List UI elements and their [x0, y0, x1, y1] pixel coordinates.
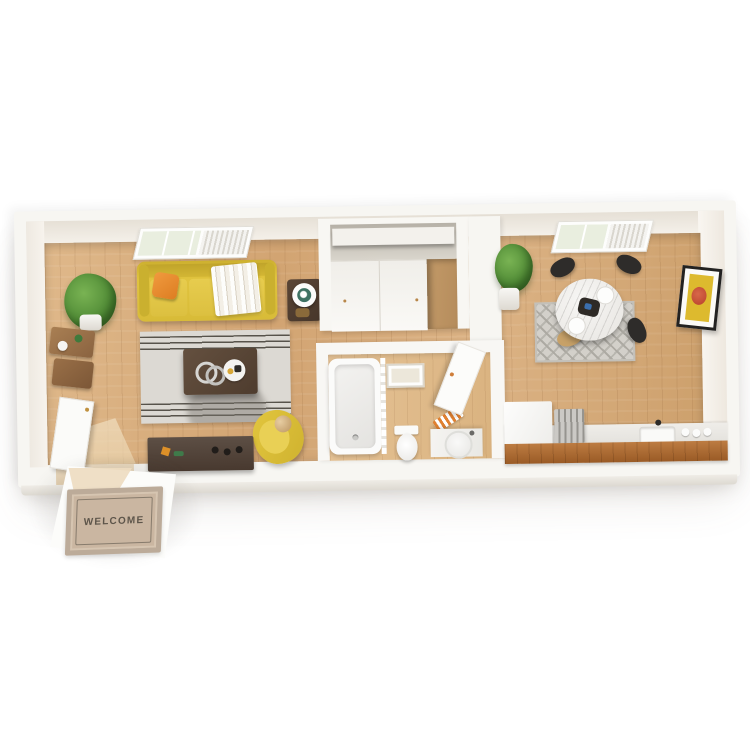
- range-icon: [554, 409, 585, 443]
- faucet-icon: [469, 430, 474, 435]
- counter-jars-icon: [681, 428, 711, 438]
- toilet: [396, 433, 417, 460]
- coffee-table: [183, 348, 258, 395]
- welcome-mat: WELCOME: [65, 486, 163, 555]
- apartment-floorplan: [14, 200, 740, 487]
- art-print: [685, 274, 714, 322]
- door-handle-icon: [449, 372, 454, 377]
- throw-blanket: [211, 262, 262, 316]
- sofa: [137, 260, 278, 322]
- shelf-tier: [51, 358, 94, 389]
- round-cushion: [272, 413, 294, 435]
- refrigerator: [504, 401, 553, 446]
- bathroom-vanity: [430, 428, 482, 457]
- bathroom: [316, 340, 506, 461]
- table-lamp-icon: [292, 283, 316, 307]
- living-room-plant-pot: [80, 314, 102, 330]
- closet-sliding-doors: [331, 259, 428, 331]
- closet-open-section: [427, 259, 458, 329]
- kitchen-faucet-icon: [655, 420, 661, 426]
- shelf-tier: [49, 327, 96, 359]
- window-blinds-icon: [199, 230, 249, 255]
- framed-wall-art: [676, 265, 722, 331]
- closet: [318, 217, 470, 331]
- bathroom-wall-art: [386, 363, 424, 388]
- orange-pillow: [151, 271, 180, 300]
- living-room-window: [133, 226, 254, 260]
- closet-shelf: [332, 227, 454, 246]
- door-handle-icon: [85, 407, 90, 412]
- mat-label: WELCOME: [70, 491, 158, 550]
- sink-basin-icon: [444, 431, 472, 459]
- decor-bottles-icon: [212, 446, 246, 459]
- bar-shelf: [45, 327, 97, 394]
- basket-icon: [295, 308, 309, 317]
- window-blinds-icon: [606, 224, 649, 249]
- plate-icon: [596, 286, 614, 304]
- sofa-armrest: [265, 263, 276, 315]
- drain-icon: [352, 434, 358, 440]
- window-glass: [138, 231, 202, 256]
- sofa-armrest: [139, 265, 150, 317]
- decor-box-icon: [161, 446, 171, 456]
- decor-plant-icon: [174, 451, 184, 456]
- floorplan-scene: WELCOME: [0, 0, 750, 750]
- dining-plant-pot: [499, 288, 519, 310]
- plate-icon: [568, 317, 586, 335]
- decor-rings-icon: [195, 362, 217, 384]
- window-glass: [556, 224, 609, 249]
- kitchen-cabinets: [505, 441, 728, 465]
- bathtub: [328, 358, 382, 455]
- dining-room-window: [551, 220, 654, 254]
- decor-tray-icon: [223, 359, 245, 381]
- side-table: [287, 279, 322, 322]
